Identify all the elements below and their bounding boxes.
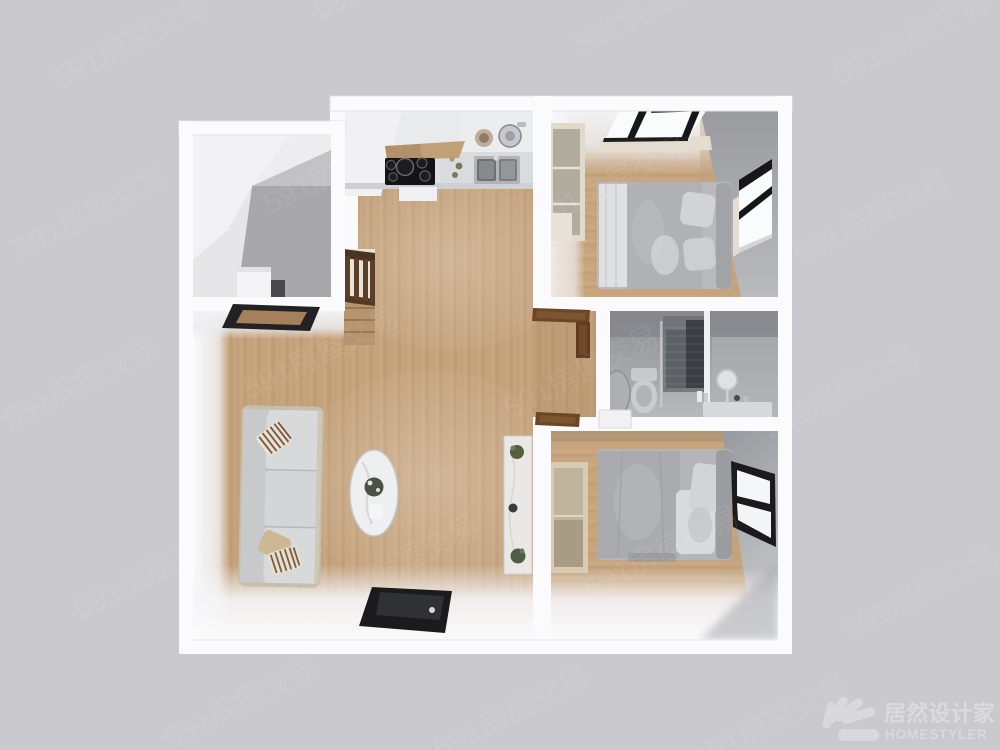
svg-text:HOMESTYLER: HOMESTYLER <box>885 727 988 742</box>
svg-text:居然设计家: 居然设计家 <box>884 701 996 726</box>
